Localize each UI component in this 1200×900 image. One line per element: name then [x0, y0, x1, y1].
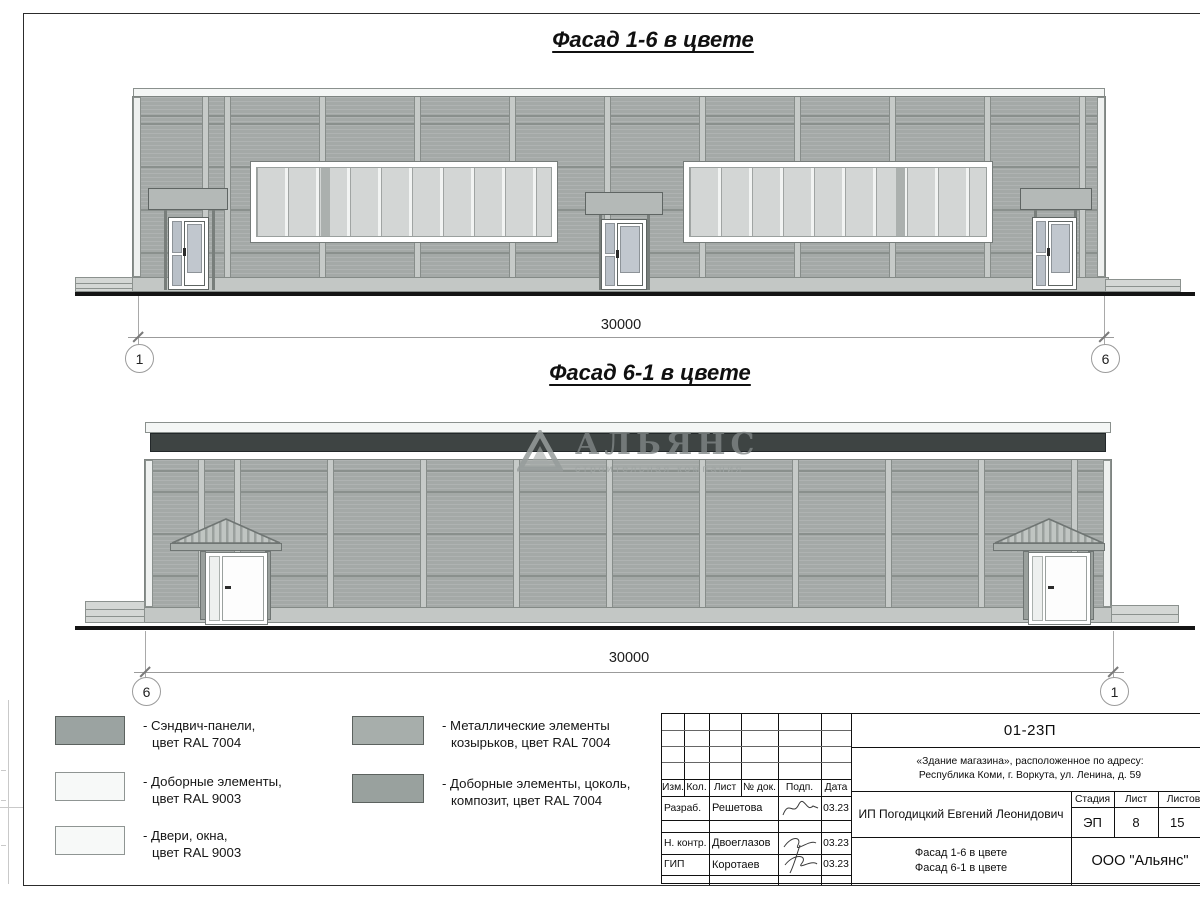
- gable-fascia: [993, 543, 1105, 551]
- gable-canopy: [170, 517, 282, 545]
- facade2-wall-panels: [145, 460, 1111, 607]
- legend-swatch: [352, 716, 424, 745]
- door-leaf: [184, 221, 205, 286]
- legend-swatch: [55, 716, 125, 745]
- signer-date: 03.23: [821, 796, 851, 820]
- door-leaf: [1045, 556, 1087, 621]
- stamp-col-podp: Подп.: [778, 779, 821, 796]
- gable-fascia: [170, 543, 282, 551]
- entrance-door: [205, 552, 268, 625]
- window-glazing: [256, 167, 552, 237]
- drawing-sheet: { "sheet": { "facade1": { "title": "Фаса…: [0, 0, 1200, 900]
- axis-marker-6: 6: [132, 677, 161, 706]
- door-leaf: [222, 556, 264, 621]
- frame-margin-mark: [1, 770, 6, 771]
- facade1-corner-trim-right: [1097, 97, 1105, 277]
- stage-label: Стадия: [1071, 791, 1114, 807]
- stage-value: ЭП: [1071, 807, 1114, 837]
- door-leaf: [1048, 221, 1073, 286]
- signer-role: Н. контр.: [664, 832, 709, 854]
- legend-swatch: [55, 826, 125, 855]
- signer-role: ГИП: [664, 854, 709, 875]
- facade2-steps-right: [1111, 605, 1179, 623]
- door-handle: [1048, 586, 1054, 589]
- legend-item-trim-elements: - Доборные элементы,цвет RAL 9003: [55, 772, 282, 807]
- sheet-content: Фасад 1-6 в цвете Фасад 6-1 в цвете: [851, 837, 1071, 885]
- axis-marker-6: 6: [1091, 344, 1120, 373]
- sheets-label: Листов: [1158, 791, 1200, 807]
- facade2-title: Фасад 6-1 в цвете: [440, 360, 860, 386]
- signer-date: 03.23: [821, 854, 851, 875]
- frame-margin-line: [8, 700, 9, 884]
- entrance-canopy: [585, 192, 663, 215]
- facade2-steps-left: [85, 601, 145, 623]
- facade2-drawing: АЛЬЯНС строительная компания: [145, 422, 1111, 623]
- entrance-door: [601, 219, 647, 290]
- entrance-canopy: [1020, 188, 1092, 210]
- facade1-drawing: [133, 88, 1105, 292]
- stamp-col-kol: Кол.: [684, 779, 709, 796]
- door-sidelight: [1032, 556, 1043, 621]
- facade1-steps-left: [75, 277, 133, 292]
- door-sidelight: [209, 556, 220, 621]
- facade2-corner-trim-left: [145, 460, 153, 607]
- facade2-plinth: [141, 607, 1115, 623]
- frame-margin-line: [0, 807, 23, 808]
- door-sidelight: [1036, 221, 1046, 286]
- dimension-line: [134, 672, 1124, 673]
- facade1-steps-right: [1105, 279, 1181, 292]
- legend-item-doors-windows: - Двери, окна,цвет RAL 9003: [55, 826, 241, 861]
- entrance-canopy: [148, 188, 228, 210]
- door-handle: [616, 250, 619, 258]
- signer-role: Разраб.: [664, 796, 709, 820]
- facade2-dark-band: [150, 433, 1106, 452]
- facade1-title: Фасад 1-6 в цвете: [443, 27, 863, 53]
- stamp-col-list: Лист: [709, 779, 741, 796]
- entrance-door: [168, 217, 209, 290]
- facade2-dimension-label: 30000: [569, 650, 689, 666]
- window-mullion: [896, 168, 905, 236]
- frame-margin-mark: [1, 845, 6, 846]
- axis-marker-1: 1: [1100, 677, 1129, 706]
- door-handle: [1047, 248, 1050, 256]
- canopy-post: [212, 210, 215, 290]
- object-description: «Здание магазина», расположенное по адре…: [851, 747, 1200, 791]
- sheet-label: Лист: [1114, 791, 1158, 807]
- signature: [780, 797, 820, 819]
- gable-canopy: [993, 517, 1105, 545]
- signer-name: Коротаев: [712, 854, 778, 875]
- door-sidelight: [605, 223, 615, 286]
- facade2-ground-line: [75, 626, 1195, 630]
- legend-swatch: [352, 774, 424, 803]
- facade2-parapet-flashing: [145, 422, 1111, 433]
- facade1-window-band-left: [250, 161, 558, 243]
- entrance-door: [1032, 217, 1077, 290]
- door-handle: [225, 586, 231, 589]
- legend-item-plinth-composite: - Доборные элементы, цоколь,композит, цв…: [352, 774, 630, 809]
- legend-item-sandwich-panels: - Сэндвич-панели,цвет RAL 7004: [55, 716, 255, 751]
- sheet-number: 8: [1114, 807, 1158, 837]
- stamp-col-doc: № док.: [741, 779, 778, 796]
- facade1-parapet-flashing: [133, 88, 1105, 97]
- legend-item-canopy-metal: - Металлические элементыкозырьков, цвет …: [352, 716, 611, 751]
- window-glazing: [689, 167, 987, 237]
- document-number: 01-23П: [851, 714, 1200, 747]
- signer-name: Решетова: [712, 796, 778, 820]
- facade1-dimension-label: 30000: [561, 317, 681, 333]
- legend-swatch: [55, 772, 125, 801]
- entrance-door: [1028, 552, 1091, 625]
- frame-margin-mark: [1, 800, 6, 801]
- signature: [780, 833, 820, 874]
- canopy-post: [164, 210, 167, 290]
- facade1-corner-trim-left: [133, 97, 141, 277]
- facade1-ground-line: [75, 292, 1195, 296]
- door-leaf: [617, 223, 643, 286]
- signer-date: 03.23: [821, 832, 851, 854]
- axis-marker-1: 1: [125, 344, 154, 373]
- sheets-total: 15: [1158, 807, 1200, 837]
- company-name: ООО "Альянс": [1071, 837, 1200, 885]
- door-sidelight: [172, 221, 182, 286]
- dimension-line: [128, 337, 1114, 338]
- window-mullion: [321, 168, 330, 236]
- signer-name: Двоеглазов: [712, 832, 778, 854]
- stamp-col-data: Дата: [821, 779, 851, 796]
- canopy-post: [647, 215, 650, 290]
- stamp-col-izm: Изм.: [662, 779, 684, 796]
- title-block: Изм. Кол. Лист № док. Подп. Дата Разраб.…: [661, 713, 1200, 884]
- facade1-window-band-right: [683, 161, 993, 243]
- door-handle: [183, 248, 186, 256]
- client-name: ИП Погодицкий Евгений Леонидович: [851, 791, 1071, 837]
